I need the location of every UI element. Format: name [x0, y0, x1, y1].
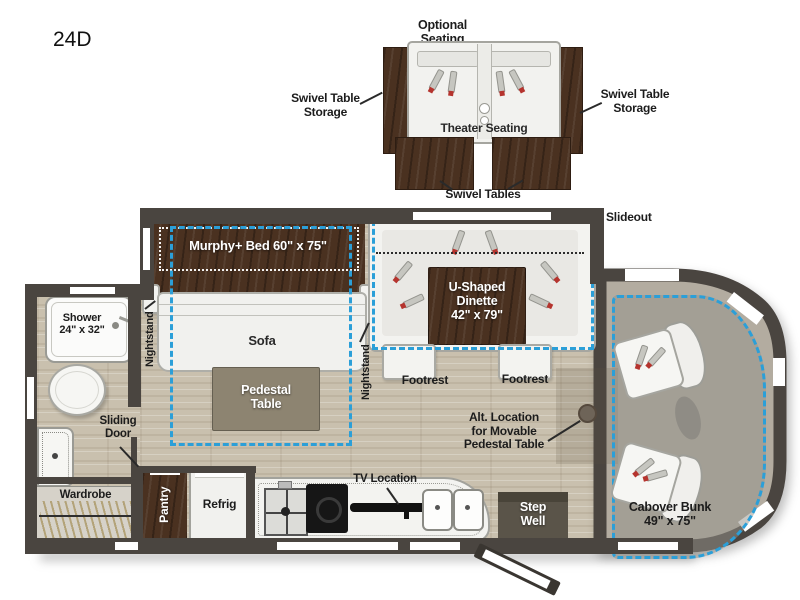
- refrig-label: Refrig: [191, 498, 248, 512]
- window: [115, 542, 138, 550]
- pointer-line: [360, 92, 383, 105]
- headrest-left: [417, 51, 479, 67]
- shower-label: Shower 24" x 32": [51, 312, 113, 337]
- table-mount-icon: [578, 404, 597, 423]
- wall-refrig-right: [246, 466, 255, 540]
- faucet-icon: [52, 453, 58, 459]
- hanger-icons: [40, 501, 131, 538]
- wardrobe: Wardrobe: [36, 486, 135, 542]
- seatbelt-icon: [448, 71, 458, 94]
- pantry-label: Pantry: [158, 470, 172, 540]
- seatbelt-icon: [428, 69, 445, 92]
- cooktop-icon: [306, 484, 348, 533]
- slideout-label: Slideout: [606, 211, 666, 225]
- stove-knob-icon: [278, 481, 292, 489]
- window: [143, 228, 150, 270]
- slide-travel-dotted-line: [376, 252, 584, 254]
- wall-left: [25, 284, 37, 554]
- nightstand-left-label: Nightstand: [144, 304, 156, 374]
- window: [410, 542, 460, 550]
- shower-head-icon: [112, 322, 119, 329]
- seatbelt-icon: [508, 69, 525, 92]
- pantry: Pantry: [143, 470, 187, 538]
- wall-kitchen-top: [135, 466, 256, 473]
- step-well: Step Well: [498, 492, 568, 538]
- headrest-right: [489, 51, 551, 67]
- theater-seating: Theater Seating: [407, 41, 561, 144]
- window: [413, 212, 551, 220]
- wall-pantry-left: [135, 466, 143, 540]
- tv-location-label: TV Location: [345, 473, 425, 486]
- shower: Shower 24" x 32": [45, 296, 133, 363]
- closet-rod: [39, 515, 132, 517]
- nightstand-right-label: Nightstand: [360, 337, 372, 407]
- floorplan-canvas: 24D Optional Seating Theater Seating Swi…: [0, 0, 800, 600]
- window: [27, 377, 34, 419]
- toilet: [48, 364, 106, 416]
- tv-mount: [404, 511, 409, 519]
- footrest-right-label: Footrest: [494, 373, 556, 387]
- window: [625, 269, 679, 281]
- refrigerator: Refrig: [189, 470, 250, 542]
- swivel-table-right: [492, 137, 571, 190]
- faucet-icon: [435, 505, 440, 510]
- window: [70, 287, 115, 294]
- window: [773, 358, 785, 386]
- kitchen-counter: [252, 477, 490, 542]
- cabover-bunk-label: Cabover Bunk 49" x 75": [606, 500, 734, 528]
- model-label: 24D: [53, 28, 92, 52]
- swivel-table-left: [395, 137, 474, 190]
- swivel-table-storage-left-label: Swivel Table Storage: [288, 92, 363, 119]
- window: [277, 542, 398, 550]
- swivel-table-storage-right-label: Swivel Table Storage: [596, 88, 674, 115]
- alt-location-label: Alt. Location for Movable Pedestal Table: [448, 411, 560, 452]
- slideout-outline-dinette: [372, 220, 594, 350]
- stove-icon: [264, 488, 308, 536]
- sliding-door-label: Sliding Door: [92, 415, 144, 441]
- cupholder-icon: [479, 103, 490, 114]
- wall-wardrobe-top: [30, 477, 131, 484]
- wall-step-down: [590, 208, 604, 284]
- window: [618, 542, 678, 550]
- faucet-icon: [465, 505, 470, 510]
- wardrobe-label: Wardrobe: [37, 489, 134, 502]
- footrest-left-label: Footrest: [396, 374, 454, 388]
- wall-bathroom-inner: [128, 292, 141, 407]
- slideout-outline-bedroom: [170, 226, 352, 446]
- theater-seating-label: Theater Seating: [409, 122, 559, 136]
- kitchen-sink: [422, 485, 484, 533]
- seatbelt-icon: [496, 71, 506, 94]
- step-well-label: Step Well: [498, 500, 568, 528]
